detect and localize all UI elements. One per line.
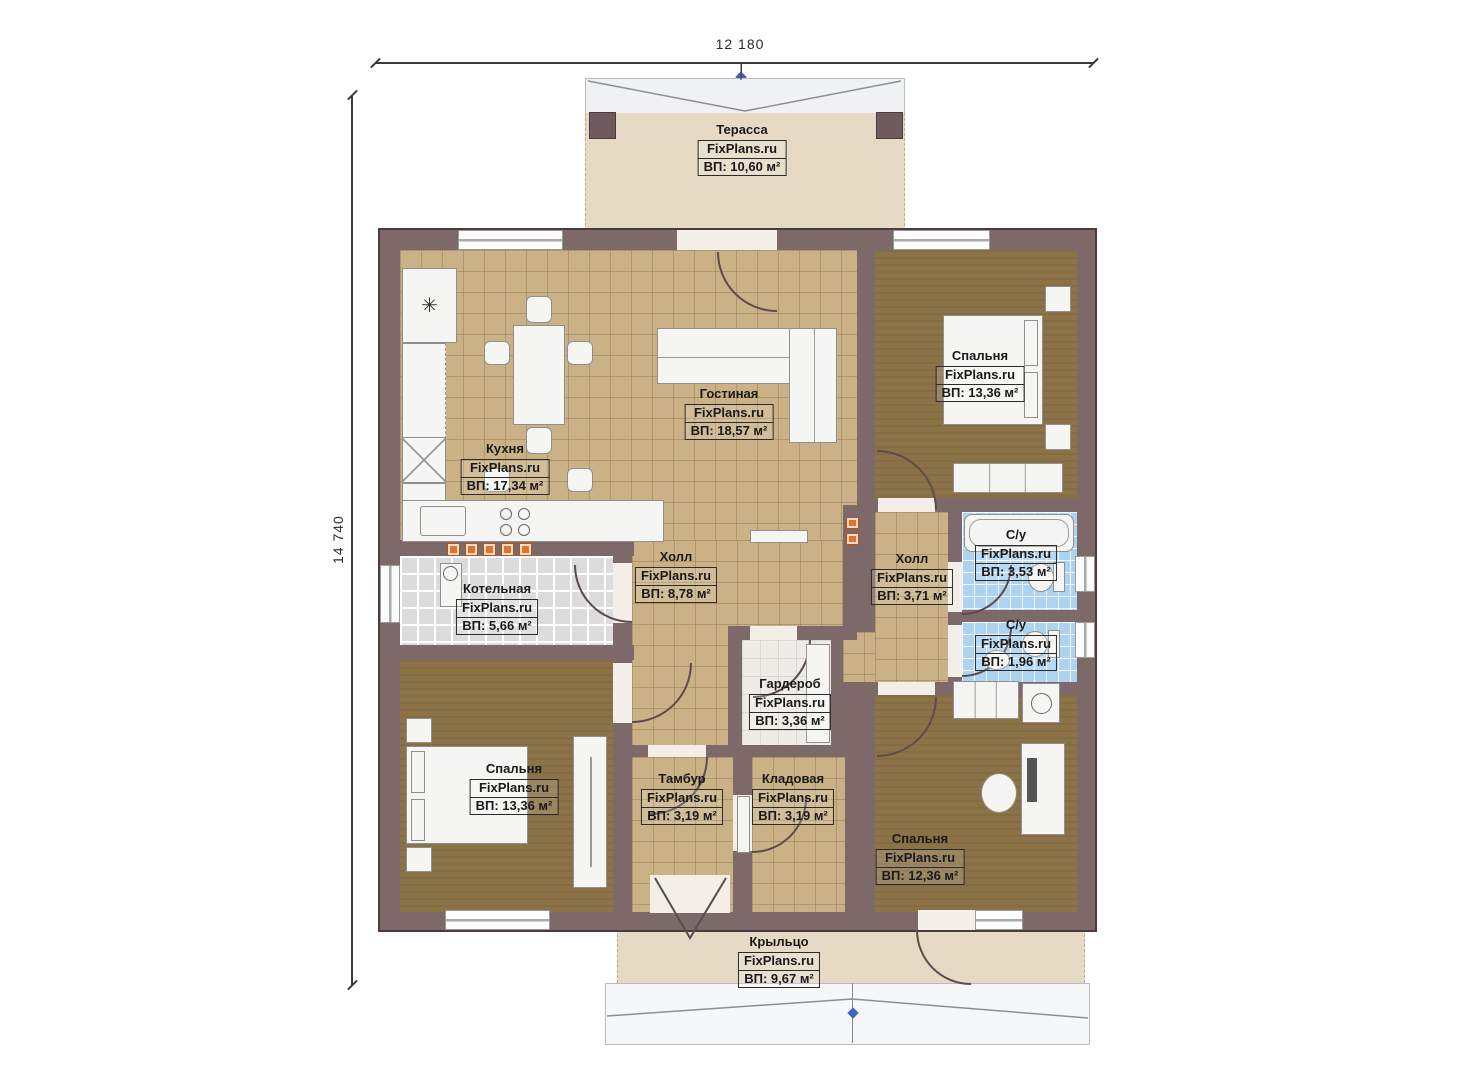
door-opening (878, 682, 935, 695)
sink-icon (420, 506, 466, 536)
room-label-terrace: Терасса FixPlans.ru ВП: 10,60 м² (698, 122, 787, 176)
room-area: ВП: 9,67 м² (738, 970, 820, 988)
window (380, 565, 400, 623)
height-dimension-line (351, 95, 353, 985)
corner-cabinet (402, 437, 446, 483)
interior-wall (728, 745, 857, 757)
room-area: ВП: 1,96 м² (975, 653, 1057, 671)
window (1075, 556, 1095, 592)
height-dimension-label: 14 740 (330, 500, 346, 580)
room-area: ВП: 18,57 м² (685, 422, 774, 440)
radiator (846, 533, 859, 545)
door-opening (918, 910, 975, 930)
room-area: ВП: 3,19 м² (641, 807, 723, 825)
room-label-bath-small: С/у FixPlans.ru ВП: 1,96 м² (975, 617, 1057, 671)
room-area: ВП: 3,53 м² (975, 563, 1057, 581)
sofa-chaise (789, 328, 837, 443)
entrance-door-recess (650, 875, 730, 913)
nightstand (406, 847, 432, 872)
interior-wall (831, 640, 843, 745)
window (975, 910, 1023, 930)
window (1075, 622, 1095, 658)
room-area: ВП: 3,19 м² (752, 807, 834, 825)
dining-table (513, 325, 565, 425)
chair (567, 341, 593, 365)
room-area: ВП: 3,71 м² (871, 587, 953, 605)
door-opening (648, 745, 706, 757)
room-label-wardrobe: Гардероб FixPlans.ru ВП: 3,36 м² (749, 676, 831, 730)
door-leaf (737, 796, 750, 853)
room-area: ВП: 10,60 м² (698, 158, 787, 176)
room-area: ВП: 12,36 м² (876, 867, 965, 885)
interior-wall (398, 540, 634, 556)
room-label-kitchen: Кухня FixPlans.ru ВП: 17,34 м² (461, 441, 550, 495)
window (893, 230, 990, 250)
interior-wall (857, 250, 875, 510)
radiator (465, 543, 478, 556)
nightstand (1045, 286, 1071, 312)
room-area: ВП: 8,78 м² (635, 585, 717, 603)
interior-wall (728, 640, 742, 747)
hall-bench (750, 530, 808, 543)
interior-wall (398, 645, 634, 660)
radiator (501, 543, 514, 556)
monitor-icon (1027, 758, 1037, 802)
watermark: FixPlans.ru (936, 366, 1025, 384)
room-label-bedroom-right: Спальня FixPlans.ru ВП: 12,36 м² (876, 831, 965, 885)
watermark: FixPlans.ru (470, 779, 559, 797)
radiator (519, 543, 532, 556)
watermark: FixPlans.ru (749, 694, 831, 712)
door-opening (948, 625, 962, 677)
watermark: FixPlans.ru (975, 635, 1057, 653)
room-area: ВП: 3,36 м² (749, 712, 831, 730)
washing-machine-icon (1022, 683, 1060, 723)
chair (567, 468, 593, 492)
watermark: FixPlans.ru (461, 459, 550, 477)
room-area: ВП: 13,36 м² (936, 384, 1025, 402)
room-label-hall-main: Холл FixPlans.ru ВП: 8,78 м² (635, 549, 717, 603)
room-label-tambur: Тамбур FixPlans.ru ВП: 3,19 м² (641, 771, 723, 825)
room-area: ВП: 17,34 м² (461, 477, 550, 495)
terrace-roof-overhang (585, 78, 905, 115)
office-chair (981, 773, 1017, 813)
room-label-hall-small: Холл FixPlans.ru ВП: 3,71 м² (871, 551, 953, 605)
watermark: FixPlans.ru (738, 952, 820, 970)
room-label-porch: Крыльцо FixPlans.ru ВП: 9,67 м² (738, 934, 820, 988)
room-label-living: Гостиная FixPlans.ru ВП: 18,57 м² (685, 386, 774, 440)
watermark: FixPlans.ru (752, 789, 834, 807)
width-dimension-label: 12 180 (700, 36, 780, 52)
wardrobe-cabinet (953, 463, 1063, 493)
kitchen-counter (402, 343, 446, 439)
door-opening (750, 626, 797, 640)
wardrobe-cabinet (953, 681, 1019, 719)
watermark: FixPlans.ru (698, 140, 787, 158)
room-label-bedroom-left: Спальня FixPlans.ru ВП: 13,36 м² (470, 761, 559, 815)
door-opening (677, 230, 777, 250)
radiator (447, 543, 460, 556)
radiator (846, 517, 859, 529)
floor-plan-canvas: 12 180 14 740 (0, 0, 1474, 1080)
window (445, 910, 550, 930)
stove-icon (497, 505, 535, 539)
window (458, 230, 563, 250)
terrace-post (876, 112, 903, 139)
room-label-pantry: Кладовая FixPlans.ru ВП: 3,19 м² (752, 771, 834, 825)
room-area: ВП: 5,66 м² (456, 617, 538, 635)
watermark: FixPlans.ru (635, 567, 717, 585)
chair (484, 341, 510, 365)
wardrobe-cabinet (573, 736, 607, 888)
room-label-bath-large: С/у FixPlans.ru ВП: 3,53 м² (975, 527, 1057, 581)
watermark: FixPlans.ru (876, 849, 965, 867)
watermark: FixPlans.ru (685, 404, 774, 422)
door-opening (613, 663, 632, 723)
interior-wall (845, 682, 875, 912)
watermark: FixPlans.ru (871, 569, 953, 587)
room-area: ВП: 13,36 м² (470, 797, 559, 815)
fridge-icon: ✳ (402, 268, 457, 343)
width-dimension-line (375, 62, 1093, 64)
watermark: FixPlans.ru (975, 545, 1057, 563)
chair (526, 296, 552, 323)
room-label-boiler: Котельная FixPlans.ru ВП: 5,66 м² (456, 581, 538, 635)
nightstand (406, 718, 432, 743)
terrace-post (589, 112, 616, 139)
radiator (483, 543, 496, 556)
watermark: FixPlans.ru (641, 789, 723, 807)
nightstand (1045, 424, 1071, 450)
room-label-bedroom-top: Спальня FixPlans.ru ВП: 13,36 м² (936, 348, 1025, 402)
watermark: FixPlans.ru (456, 599, 538, 617)
desk (1021, 743, 1065, 835)
